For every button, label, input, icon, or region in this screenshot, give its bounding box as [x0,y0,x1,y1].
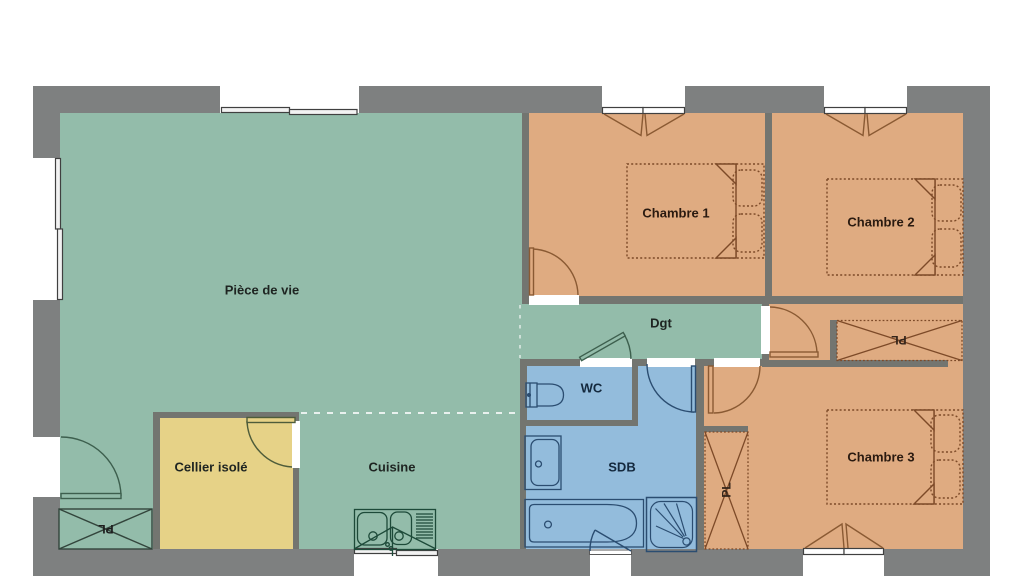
svg-text:Cuisine: Cuisine [369,460,416,475]
svg-text:PL: PL [891,333,906,347]
svg-text:Cellier isolé: Cellier isolé [175,460,248,475]
svg-text:Chambre 2: Chambre 2 [847,215,914,230]
svg-text:Chambre 3: Chambre 3 [847,450,914,465]
svg-text:SDB: SDB [608,460,635,475]
svg-text:PL: PL [720,482,734,497]
svg-text:Pièce de vie: Pièce de vie [225,283,299,298]
svg-text:Chambre 1: Chambre 1 [642,206,709,221]
svg-text:WC: WC [581,381,603,396]
svg-text:Dgt: Dgt [650,316,672,331]
svg-text:PL: PL [98,522,113,536]
